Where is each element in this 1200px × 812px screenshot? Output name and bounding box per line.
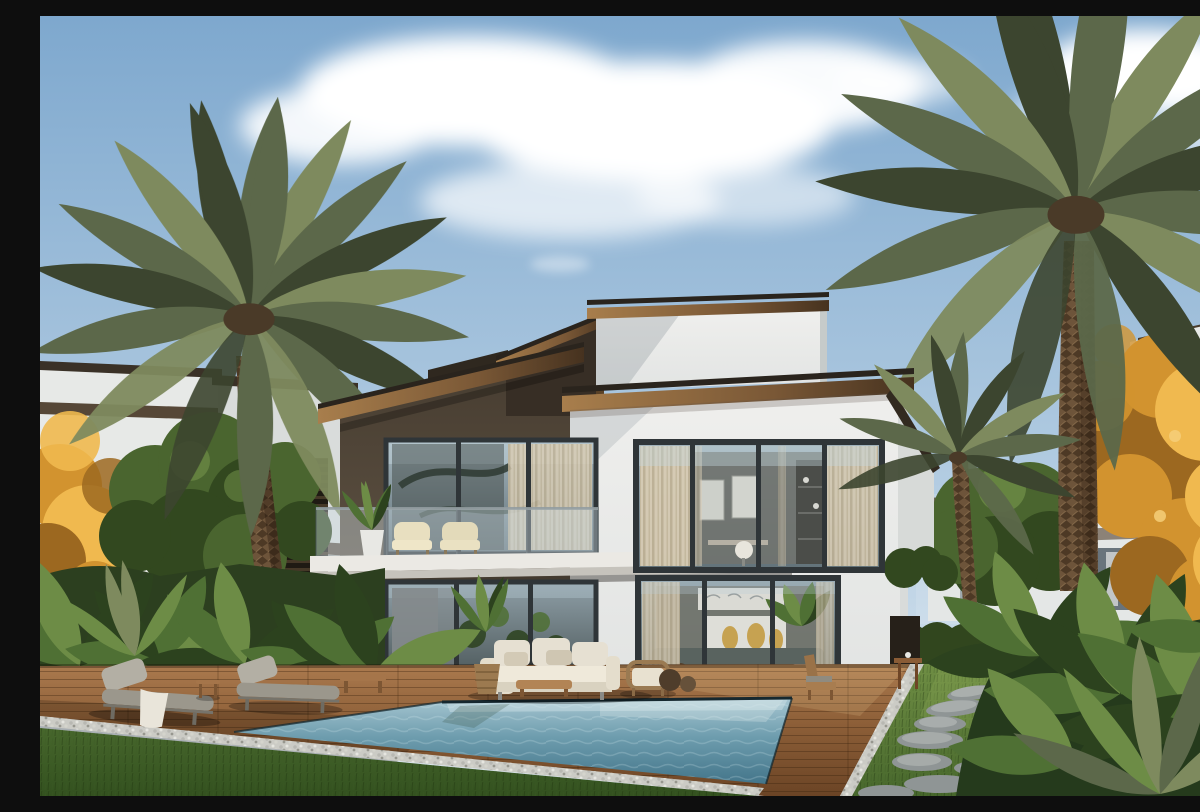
window-upper-right bbox=[636, 442, 882, 570]
interior-art-frame bbox=[700, 480, 724, 520]
villa-scene-svg bbox=[40, 16, 1200, 796]
interior-chair bbox=[735, 541, 753, 559]
villa-render bbox=[40, 16, 1200, 796]
wicker-pot bbox=[474, 664, 500, 694]
balcony-plant-pot bbox=[360, 530, 384, 558]
